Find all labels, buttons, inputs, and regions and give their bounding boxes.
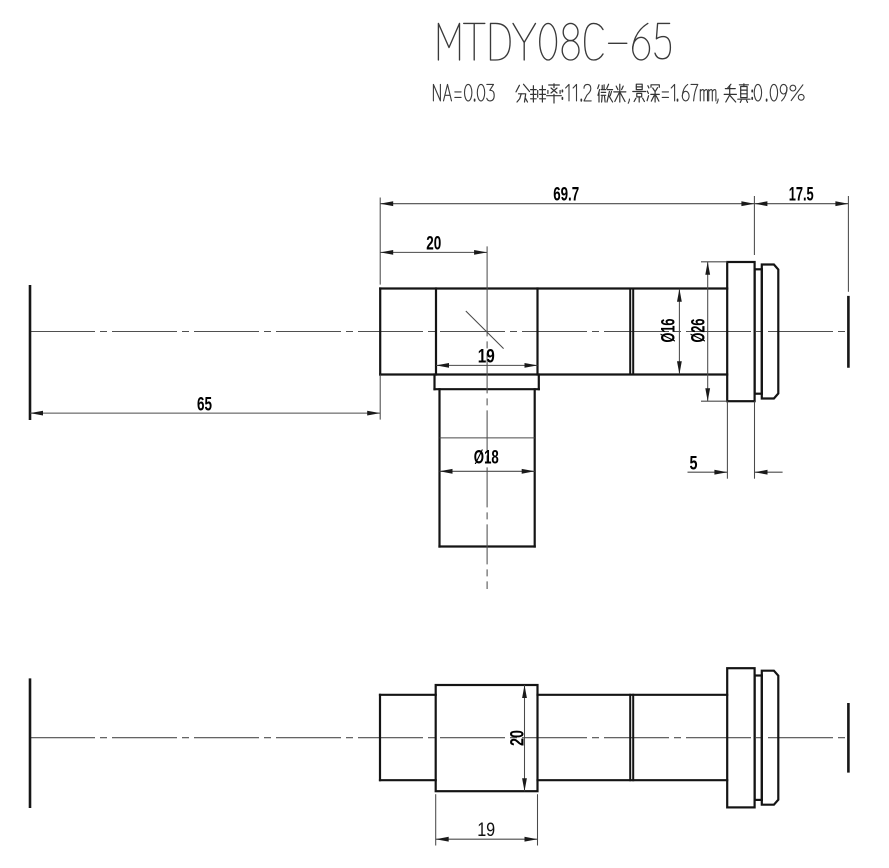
svg-text:Ø16: Ø16 bbox=[659, 319, 680, 343]
svg-text:5: 5 bbox=[690, 454, 698, 475]
svg-text:20: 20 bbox=[426, 233, 441, 254]
svg-text:19: 19 bbox=[478, 346, 495, 367]
svg-text:19: 19 bbox=[477, 820, 495, 841]
svg-text:65: 65 bbox=[197, 394, 212, 415]
svg-text:Ø26: Ø26 bbox=[689, 319, 710, 343]
svg-text:Ø18: Ø18 bbox=[474, 448, 499, 469]
svg-text:20: 20 bbox=[508, 730, 529, 746]
svg-text:17.5: 17.5 bbox=[789, 185, 814, 206]
svg-text:69.7: 69.7 bbox=[553, 185, 579, 206]
